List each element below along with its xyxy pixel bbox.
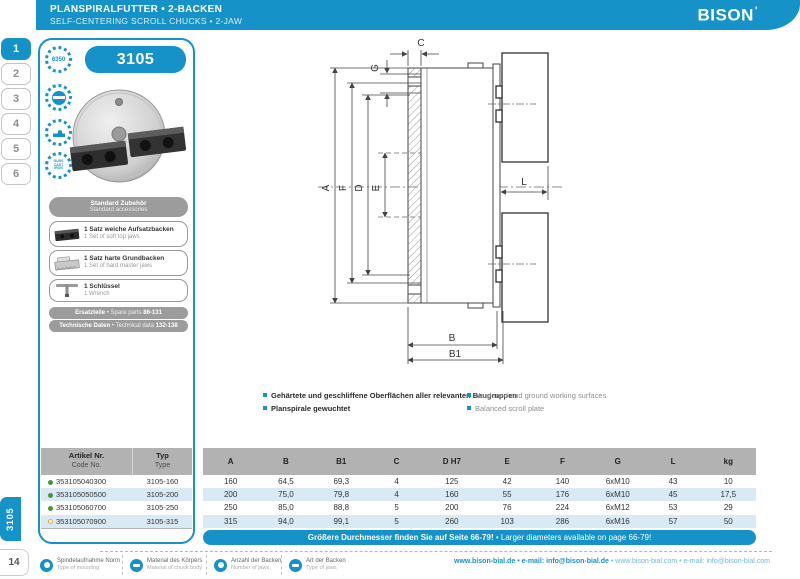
product-panel: 6350 GUSS CAST IRON 3105	[38, 38, 195, 544]
accessories-header-de: Standard Zubehör	[91, 200, 147, 207]
jaw-number-icon	[214, 559, 227, 572]
accessory-soft-jaws: 1 Satz weiche Aufsatzbacken 1 Set of sof…	[49, 221, 188, 247]
legend-jaw-type: Art der Backen Type of jaws	[281, 555, 346, 575]
table-row: 250 85,0 88,8 5 200 76 224 6xM12 53 29	[203, 501, 756, 514]
cell: 79,8	[314, 490, 369, 499]
feature-de-2: Planspirale gewuchtet	[263, 404, 350, 413]
type-value: 3105-160	[133, 477, 192, 486]
brand-text: BISON	[698, 6, 754, 25]
availability-dot	[48, 493, 53, 498]
legend-de: Art der Backen	[306, 558, 346, 566]
code-value: 353105070900	[56, 517, 106, 526]
cell: 45	[645, 490, 700, 499]
legend-material: Material des Körpers Material of chuck b…	[122, 555, 202, 575]
col-b: B	[258, 448, 313, 475]
dim-label-c: C	[417, 38, 424, 49]
logo-horn-icon: '	[755, 5, 758, 17]
article-table-header: Artikel Nr. Code No. Typ Type	[41, 448, 192, 475]
cell: 17,5	[701, 490, 756, 499]
legend-en: Material of chuck body	[147, 565, 202, 572]
table-row: 353105040300 3105-160	[41, 475, 192, 488]
cell: 42	[479, 477, 534, 486]
cell: 103	[479, 517, 534, 526]
accessories-header-en: Standard accessories	[90, 207, 148, 214]
cell: 125	[424, 477, 479, 486]
sidebar-tab-3[interactable]: 3	[1, 88, 31, 110]
cell: 176	[535, 490, 590, 499]
cell: 224	[535, 503, 590, 512]
dim-label-g: G	[370, 64, 381, 72]
accessory-2-de: 1 Satz harte Grundbacken	[84, 255, 164, 263]
cell: 29	[701, 503, 756, 512]
jaw-type-icon	[289, 559, 302, 572]
email-de-link[interactable]: e-mail: info@bison-bial.de	[522, 558, 609, 565]
cell: 140	[535, 477, 590, 486]
accessory-1-en: 1 Set of soft top jaws	[84, 234, 174, 242]
email-com-link[interactable]: e-mail: info@bison-bial.com	[684, 558, 770, 565]
table-row: 353105070900 3105-315	[41, 515, 192, 528]
website-de-link[interactable]: www.bison-bial.de	[454, 558, 515, 565]
cell: 6xM16	[590, 517, 645, 526]
cell: 50	[701, 517, 756, 526]
cell: 75,0	[258, 490, 313, 499]
col-l: L	[645, 448, 700, 475]
spare-parts-pages: 86-131	[143, 310, 162, 316]
cell: 200	[424, 503, 479, 512]
mounting-glyph	[51, 126, 67, 140]
tech-data-de: Technische Daten	[59, 323, 110, 329]
cell: 5	[369, 517, 424, 526]
chuck-section	[408, 63, 500, 308]
chuck-face-glyph	[52, 91, 66, 105]
article-table: Artikel Nr. Code No. Typ Type 3531050403…	[41, 448, 192, 529]
dim-label-b: B	[449, 333, 456, 344]
code-value: 353105050500	[56, 490, 106, 499]
dim-label-e: E	[371, 184, 382, 191]
page-header: PLANSPIRALFUTTER • 2-BACKEN SELF-CENTERI…	[36, 0, 800, 30]
sidebar-tab-6[interactable]: 6	[1, 163, 31, 185]
tech-data-en: Technical data	[116, 323, 154, 329]
sidebar-tab-2[interactable]: 2	[1, 63, 31, 85]
page-number: 14	[0, 549, 29, 576]
code-value: 353105040300	[56, 477, 106, 486]
cell: 10	[701, 477, 756, 486]
table-row: 160 64,5 69,3 4 125 42 140 6xM10 43 10	[203, 475, 756, 488]
bullet-square-icon	[263, 406, 267, 410]
technical-drawing: A F D E G C L B B1	[290, 30, 610, 380]
col-code-no: Code No.	[41, 462, 132, 469]
larger-diameters-note: Größere Durchmesser finden Sie auf Seite…	[203, 530, 756, 545]
bison-logo: BISON'	[698, 5, 758, 26]
cell: 250	[203, 503, 258, 512]
soft-jaw-icon	[50, 225, 84, 243]
sidebar-tab-1[interactable]: 1	[1, 38, 31, 60]
product-photo-chuck	[67, 84, 189, 194]
accessory-master-jaws: 1 Satz harte Grundbacken 1 Set of hard m…	[49, 250, 188, 276]
col-d-h7: D H7	[424, 448, 479, 475]
col-a: A	[203, 448, 258, 475]
chuck-body-material-icon	[130, 559, 143, 572]
cell: 160	[424, 490, 479, 499]
cell: 6xM12	[590, 503, 645, 512]
spare-parts-de: Ersatzteile	[75, 310, 105, 316]
rpm-value: 6350	[52, 57, 65, 63]
cell: 160	[203, 477, 258, 486]
feature-de-2-text: Planspirale gewuchtet	[271, 404, 350, 413]
col-typ: Typ	[133, 451, 192, 460]
cell: 286	[535, 517, 590, 526]
cell: 4	[369, 477, 424, 486]
sidebar-tab-4[interactable]: 4	[1, 113, 31, 135]
page-title-en: SELF-CENTERING SCROLL CHUCKS • 2-JAW	[50, 16, 242, 26]
table-row: 353105050500 3105-200	[41, 488, 192, 501]
accessory-2-en: 1 Set of hard master jaws	[84, 263, 164, 271]
feature-en-1-text: Hardened and ground working surfaces	[475, 391, 606, 400]
cell: 200	[203, 490, 258, 499]
cell: 57	[645, 517, 700, 526]
availability-dot	[48, 480, 53, 485]
spare-parts-link[interactable]: Ersatzteile • Spare parts 86-131	[49, 307, 188, 319]
dim-label-f: F	[338, 185, 349, 191]
cell: 53	[645, 503, 700, 512]
code-value: 353105060700	[56, 503, 106, 512]
series-side-tab[interactable]: 3105	[0, 497, 21, 541]
technical-data-link[interactable]: Technische Daten • Technical data 132-13…	[49, 320, 188, 332]
col-f: F	[535, 448, 590, 475]
table-row: 200 75,0 79,8 4 160 55 176 6xM10 45 17,5	[203, 488, 756, 501]
cell: 43	[645, 477, 700, 486]
series-number-badge: 3105	[85, 46, 186, 73]
accessory-wrench: 1 Schlüssel 1 Wrench	[49, 279, 188, 302]
legend-de: Spindelaufnahme Norm	[57, 558, 120, 566]
accessory-3-en: 1 Wrench	[84, 291, 120, 299]
footer-links: www.bison-bial.de • e-mail: info@bison-b…	[440, 558, 770, 565]
bullet-square-icon	[263, 393, 267, 397]
legend-de: Anzahl der Backen	[231, 558, 281, 566]
availability-dot	[48, 519, 53, 524]
rpm-badge-icon: 6350	[45, 46, 72, 73]
availability-dot	[48, 506, 53, 511]
cell: 6xM10	[590, 477, 645, 486]
cell: 260	[424, 517, 479, 526]
bullet-square-icon	[467, 406, 471, 410]
col-kg: kg	[701, 448, 756, 475]
feature-en-2: Balanced scroll plate	[467, 404, 544, 413]
cell: 5	[369, 503, 424, 512]
type-value: 3105-200	[133, 490, 192, 499]
dim-label-a: A	[321, 184, 332, 191]
footer-divider	[100, 551, 772, 552]
tech-data-pages: 132-138	[156, 323, 178, 329]
legend-en: Type of mounting	[57, 565, 120, 572]
col-type: Type	[133, 462, 192, 469]
note-de: Größere Durchmesser finden Sie auf Seite…	[308, 533, 494, 542]
cell: 55	[479, 490, 534, 499]
feature-en-2-text: Balanced scroll plate	[475, 404, 544, 413]
cell: 99,1	[314, 517, 369, 526]
cell: 69,3	[314, 477, 369, 486]
dim-label-b1: B1	[449, 349, 462, 360]
cell: 88,8	[314, 503, 369, 512]
col-e: E	[479, 448, 534, 475]
legend-mounting: Spindelaufnahme Norm Type of mounting	[40, 555, 120, 575]
legend-en: Type of jaws	[306, 565, 346, 572]
cell: 64,5	[258, 477, 313, 486]
dim-label-d: D	[354, 184, 365, 191]
master-jaw-icon	[50, 254, 84, 272]
cell: 94,0	[258, 517, 313, 526]
cell: 315	[203, 517, 258, 526]
cell: 85,0	[258, 503, 313, 512]
bullet-square-icon	[467, 393, 471, 397]
type-value: 3105-250	[133, 503, 192, 512]
col-b1: B1	[314, 448, 369, 475]
cell: 6xM10	[590, 490, 645, 499]
table-row: 353105060700 3105-250	[41, 501, 192, 514]
mounting-norm-icon	[40, 559, 53, 572]
table-row: 315 94,0 99,1 5 260 103 286 6xM16 57 50	[203, 515, 756, 528]
sidebar-tab-5[interactable]: 5	[1, 138, 31, 160]
cell: 4	[369, 490, 424, 499]
col-artikel-nr: Artikel Nr.	[41, 451, 132, 460]
material-line-3: IRON	[54, 167, 63, 171]
dimensions-table-header: A B B1 C D H7 E F G L kg	[203, 448, 756, 475]
col-c: C	[369, 448, 424, 475]
dim-label-l: L	[521, 177, 527, 188]
col-g: G	[590, 448, 645, 475]
dimensions-table: A B B1 C D H7 E F G L kg 160 64,5 69,3 4…	[203, 448, 756, 528]
catalog-page: PLANSPIRALFUTTER • 2-BACKEN SELF-CENTERI…	[0, 0, 800, 579]
wrench-icon	[50, 282, 84, 299]
cell: 76	[479, 503, 534, 512]
website-com-link[interactable]: www.bison-bial.com	[615, 558, 677, 565]
legend-de: Material des Körpers	[147, 558, 202, 566]
feature-en-1: Hardened and ground working surfaces	[467, 391, 606, 400]
accessory-1-de: 1 Satz weiche Aufsatzbacken	[84, 226, 174, 234]
legend-jaw-count: Anzahl der Backen Number of jaws	[206, 555, 281, 575]
accessories-header: Standard Zubehör Standard accessories	[49, 197, 188, 217]
legend-en: Number of jaws	[231, 565, 281, 572]
type-value: 3105-315	[133, 517, 192, 526]
accessory-3-de: 1 Schlüssel	[84, 283, 120, 291]
note-en: Larger diameters available on page 66-79…	[501, 533, 651, 542]
page-title-de: PLANSPIRALFUTTER • 2-BACKEN	[50, 4, 222, 15]
spare-parts-en: Spare parts	[111, 310, 142, 316]
